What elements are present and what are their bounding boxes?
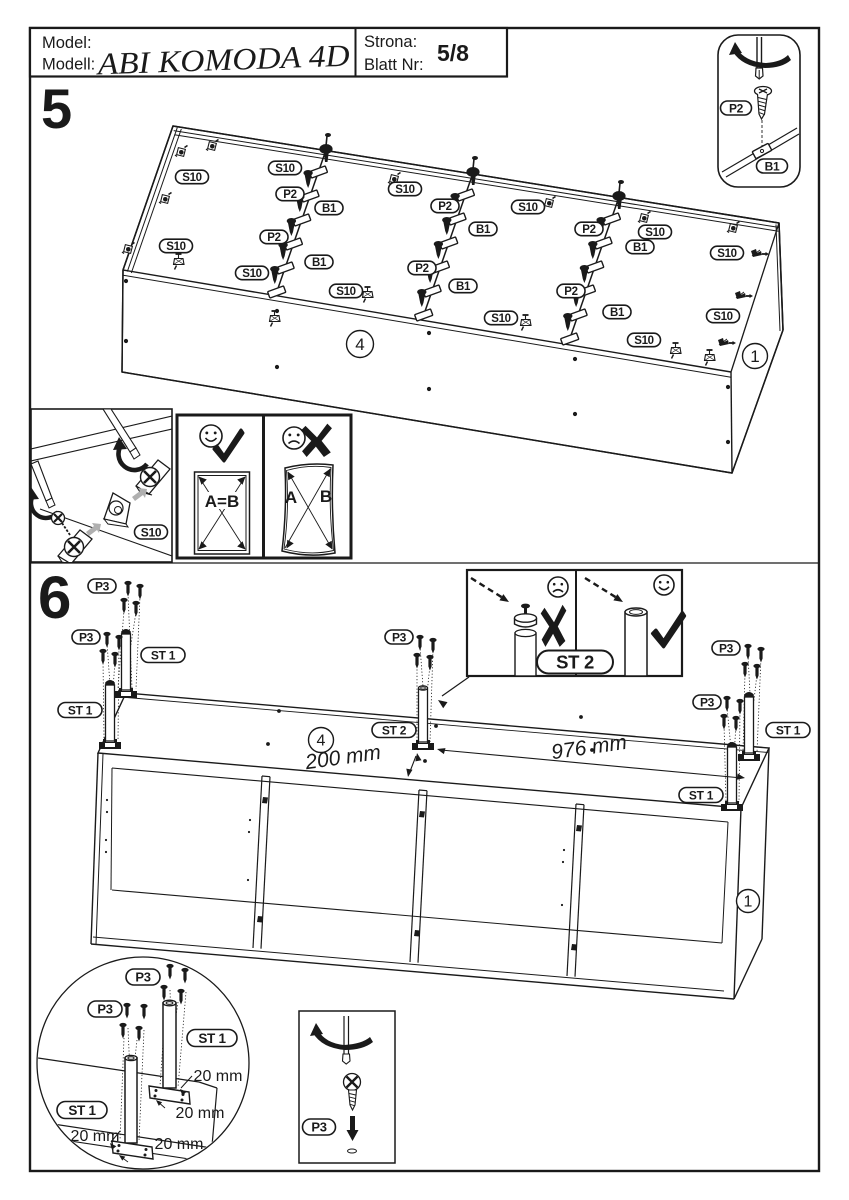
svg-text:Blatt Nr:: Blatt Nr:	[364, 56, 424, 74]
svg-text:S10: S10	[141, 525, 162, 539]
svg-text:P2: P2	[415, 263, 428, 275]
svg-text:ST 1: ST 1	[198, 1031, 226, 1046]
svg-text:S10: S10	[713, 311, 733, 323]
svg-text:P2: P2	[729, 101, 744, 115]
svg-text:B1: B1	[633, 242, 648, 254]
svg-text:P2: P2	[267, 232, 280, 244]
svg-text:S10: S10	[395, 184, 415, 196]
svg-text:B1: B1	[765, 159, 780, 173]
svg-text:ST 1: ST 1	[151, 648, 176, 662]
svg-text:Strona:: Strona:	[364, 33, 417, 51]
svg-text:B1: B1	[610, 307, 625, 319]
svg-text:1: 1	[744, 894, 753, 911]
svg-text:5/8: 5/8	[437, 40, 469, 66]
svg-text:20 mm: 20 mm	[176, 1105, 225, 1122]
svg-text:P2: P2	[283, 189, 296, 201]
svg-text:S10: S10	[491, 313, 511, 325]
svg-text:A: A	[285, 488, 297, 507]
svg-text:Modell:: Modell:	[42, 56, 95, 74]
svg-text:B: B	[320, 487, 332, 506]
svg-text:ST 1: ST 1	[68, 703, 93, 717]
svg-text:20 mm: 20 mm	[71, 1128, 120, 1145]
svg-text:20 mm: 20 mm	[155, 1136, 204, 1153]
svg-text:4: 4	[355, 335, 364, 354]
svg-text:S10: S10	[717, 248, 737, 260]
svg-text:6: 6	[38, 564, 71, 631]
svg-text:ST 1: ST 1	[68, 1103, 96, 1118]
svg-text:P3: P3	[700, 695, 715, 709]
svg-text:P3: P3	[95, 579, 110, 593]
svg-text:B1: B1	[312, 257, 327, 269]
svg-text:S10: S10	[242, 268, 262, 280]
svg-text:Model:: Model:	[42, 34, 92, 52]
svg-text:ST 2: ST 2	[556, 652, 594, 673]
svg-text:B1: B1	[322, 203, 337, 215]
svg-text:S10: S10	[634, 335, 654, 347]
svg-text:B1: B1	[456, 281, 471, 293]
svg-text:S10: S10	[182, 172, 202, 184]
svg-text:5: 5	[41, 77, 72, 140]
svg-text:ST 1: ST 1	[689, 788, 714, 802]
svg-text:20 mm: 20 mm	[194, 1068, 243, 1085]
svg-text:P3: P3	[392, 630, 407, 644]
svg-text:S10: S10	[166, 241, 186, 253]
svg-text:S10: S10	[275, 163, 295, 175]
svg-text:B1: B1	[476, 224, 491, 236]
svg-text:P3: P3	[719, 641, 734, 655]
svg-text:P3: P3	[311, 1120, 326, 1135]
svg-text:P2: P2	[582, 224, 595, 236]
svg-text:A=B: A=B	[205, 492, 239, 511]
svg-text:ST 2: ST 2	[382, 723, 407, 737]
svg-text:S10: S10	[336, 286, 356, 298]
svg-text:P3: P3	[79, 630, 94, 644]
svg-text:P3: P3	[97, 1002, 112, 1017]
svg-text:P3: P3	[135, 970, 150, 985]
svg-text:S10: S10	[645, 227, 665, 239]
svg-text:1: 1	[750, 347, 759, 366]
svg-text:ST 1: ST 1	[776, 723, 801, 737]
svg-text:4: 4	[317, 733, 326, 750]
svg-text:S10: S10	[518, 202, 538, 214]
svg-text:P2: P2	[564, 286, 577, 298]
svg-text:P2: P2	[438, 201, 451, 213]
